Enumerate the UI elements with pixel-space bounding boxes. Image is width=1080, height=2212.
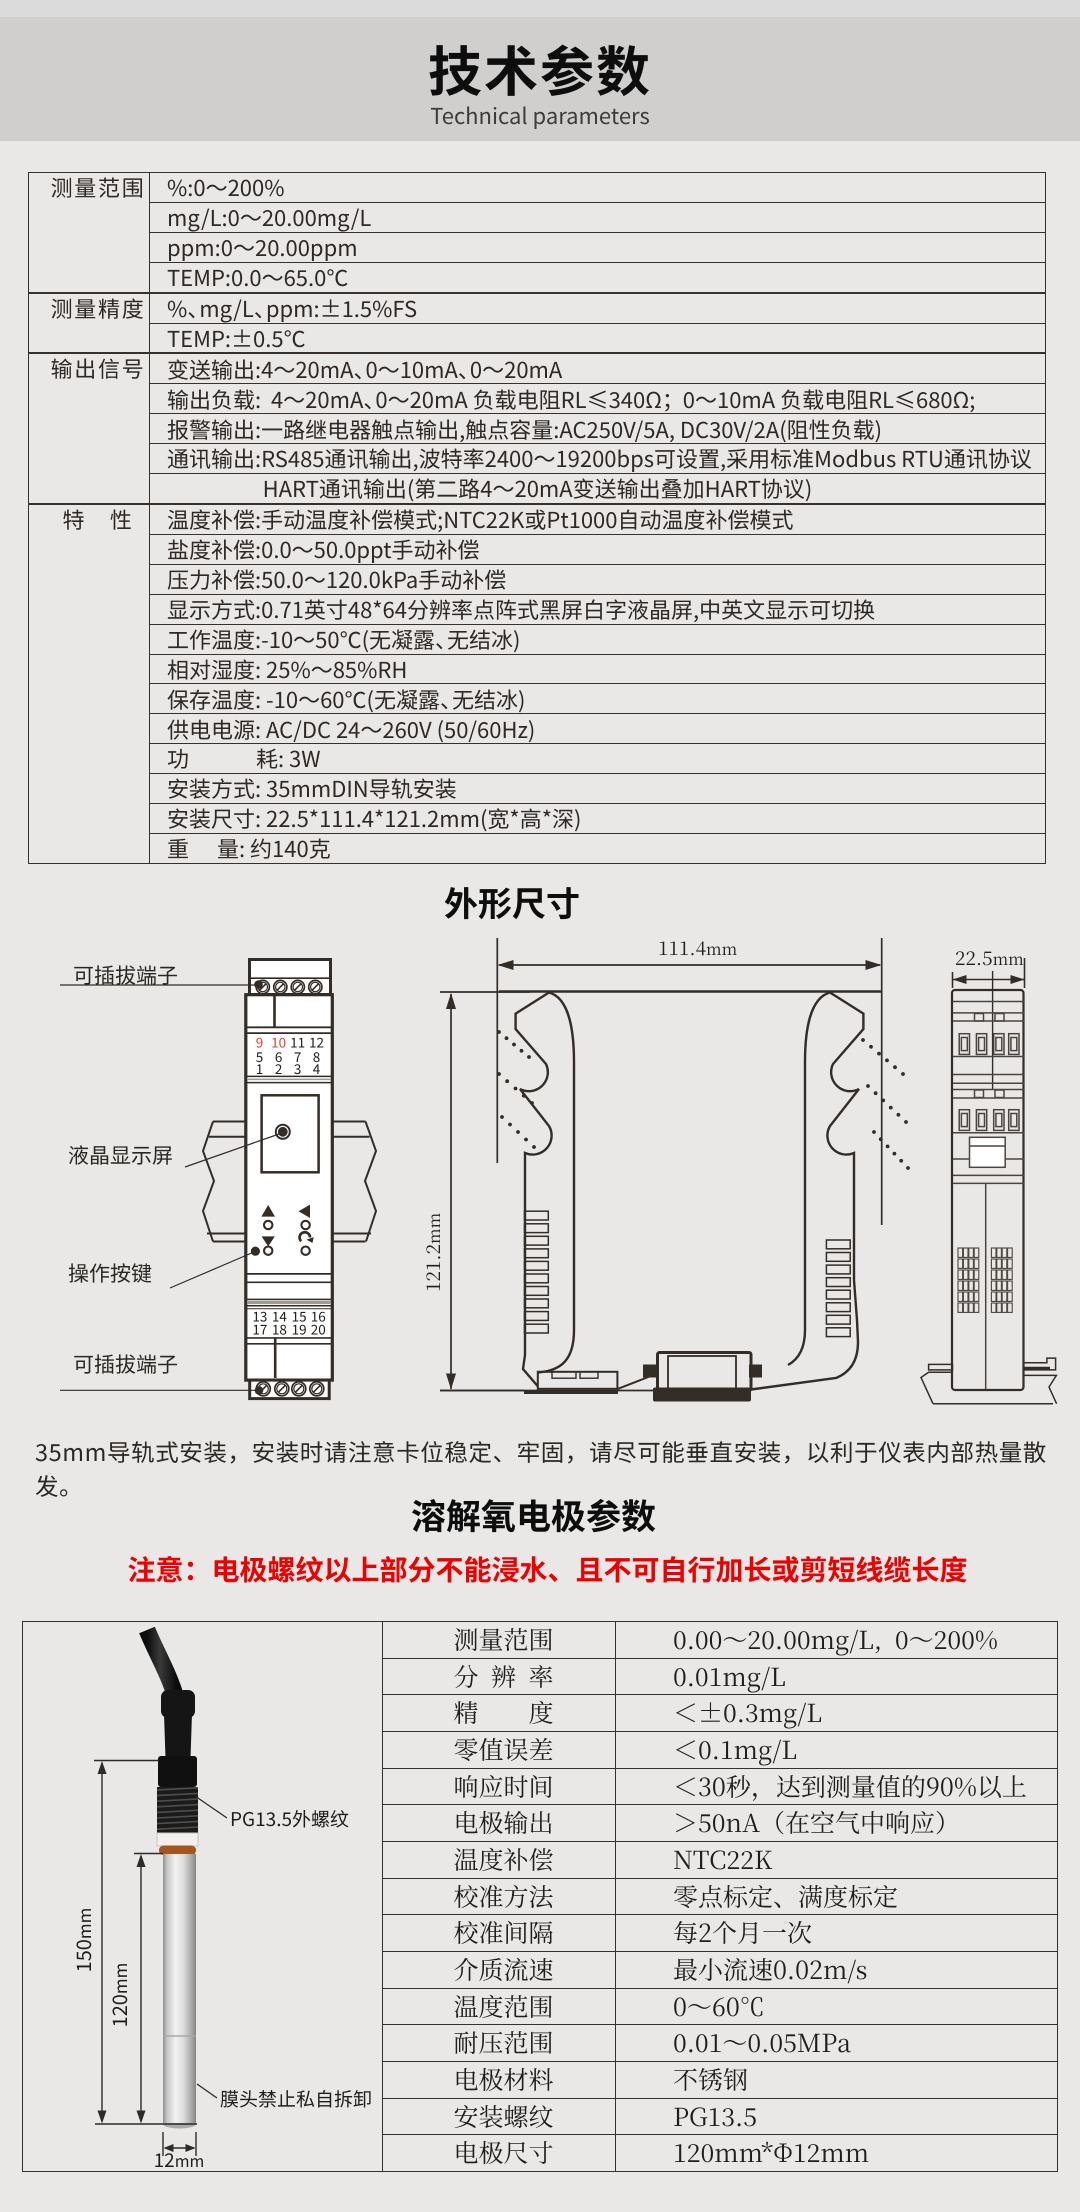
svg-text:PG13.5外螺纹: PG13.5外螺纹 [230,1805,349,1832]
svg-text:4: 4 [313,1058,321,1078]
svg-text:可插拔端子: 可插拔端子 [73,1349,178,1379]
svg-text:膜头禁止私自拆卸: 膜头禁止私自拆卸 [220,2085,372,2112]
svg-text:20: 20 [311,1319,326,1339]
svg-text:2: 2 [275,1058,283,1078]
svg-text:可插拔端子: 可插拔端子 [73,960,178,990]
svg-text:操作按键: 操作按键 [68,1258,152,1288]
svg-text:120mm: 120mm [104,1963,133,2028]
svg-text:121.2mm: 121.2mm [419,1212,446,1292]
svg-text:111.4mm: 111.4mm [658,934,738,961]
svg-text:18: 18 [272,1319,287,1339]
svg-text:17: 17 [252,1319,267,1339]
svg-text:液晶显示屏: 液晶显示屏 [68,1140,173,1170]
svg-text:12mm: 12mm [154,2146,205,2169]
svg-text:1: 1 [256,1058,264,1078]
svg-text:22.5mm: 22.5mm [955,944,1024,971]
svg-text:19: 19 [292,1319,307,1339]
svg-text:3: 3 [294,1058,302,1078]
svg-text:150mm: 150mm [68,1908,97,1973]
